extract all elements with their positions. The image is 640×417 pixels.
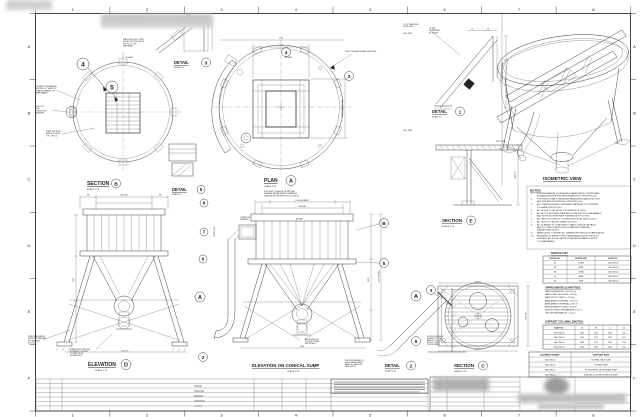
note-number: 1.: [531, 193, 533, 195]
notes-list: 1.FOR MECHANICAL (PLATEWORK) FABRICATION…: [531, 192, 605, 243]
note-plan-location: ORIENTATION SHOWN FOR 1300-TNK-05.: [264, 194, 300, 197]
dim-detail1-2: 36: [487, 29, 489, 31]
note-number: 2.: [531, 199, 533, 201]
grid-row-label: F: [633, 375, 636, 380]
note-line: TO GRADE S355JR U.N.O.: [537, 206, 563, 209]
drawing-sheet: NOZZLE NO.NOZZLE SIZEEQUIP. NO.N1100NB13…: [0, 0, 640, 417]
dim-sectionc-base: 960 TYP.: [474, 349, 482, 351]
section-c-scale: SCALE 1:20: [454, 370, 467, 373]
ref-bubble-label: E: [469, 218, 473, 224]
grid-col-label: 3: [220, 413, 223, 417]
note-line: INSTALLATION SEE PPM SPECIFICATION No. P…: [537, 195, 598, 198]
ref-bubble: 4: [77, 58, 89, 70]
section-b-title: SECTION: [87, 181, 110, 187]
ref-bubble: 3: [427, 286, 436, 295]
table-cell: 1365: [580, 332, 584, 334]
redacted-sheet-stamp: [101, 14, 213, 28]
support-lengths-title: SUPPORT COLUMN LENGTHS:: [545, 320, 584, 324]
ref-bubble-label: D: [124, 363, 128, 369]
dim-conical-height2: 2150 OVERALL: [378, 270, 381, 283]
note-line: ENGINEER TO INSPECT FULLY ASSEMBLED EQUI…: [537, 235, 599, 238]
quantity-line: AREA (PAINT) EXTERNAL = 9.39 m²: [545, 302, 578, 305]
grid-row-label: E: [28, 309, 31, 314]
redacted-titleblock-text: [433, 378, 489, 391]
notes-title: NOTES:: [530, 189, 541, 193]
table-cell: STACKER CYCLONE OVERFLOW SUMP: [584, 374, 619, 377]
ref-bubble-label: 2: [410, 363, 413, 369]
quantity-line: LENGTH HANDRAILING = 12.6 m: [545, 312, 576, 315]
detail-2-view: [377, 288, 466, 356]
grid-col-label: 5: [369, 413, 372, 417]
grid-col-label: 2: [146, 7, 149, 12]
ref-bubble: 2: [407, 361, 416, 370]
table-cell: 1300-TNK-10: [545, 365, 556, 367]
dim-elev-height: 1600: [73, 278, 75, 282]
redacted-corner-text: [6, 0, 52, 10]
dim-sectionc-side: 1300 SQ.: [526, 312, 528, 320]
grid-col-label: 1: [72, 7, 75, 12]
table-cell: 1615: [594, 337, 598, 339]
drawing-canvas: NOZZLE NO.NOZZLE SIZEEQUIP. NO.N1100NB13…: [0, 0, 640, 417]
ref-bubble-label: 8: [202, 257, 205, 262]
detail-3-title: DETAIL: [174, 60, 189, 65]
ref-bubble: A: [286, 176, 296, 186]
table-cell: N4: [554, 276, 556, 278]
detail-1-view: [430, 30, 508, 109]
ref-bubble: 3: [202, 58, 211, 67]
grid-col-label: 4: [295, 413, 298, 417]
ref-bubble: 5: [380, 259, 389, 268]
isometric-view: [494, 27, 631, 173]
quantities-list: MASS PLATEWORK = 2052.59 kgMASS STEEL SE…: [545, 290, 582, 315]
nozzle-list-table: NOZZLE NO.NOZZLE SIZEEQUIP. NO.N1100NB13…: [543, 256, 631, 283]
table-cell: 1300-TNK-10: [554, 337, 565, 339]
ref-bubble: A: [195, 292, 205, 302]
ref-bubble-label: B: [114, 181, 118, 187]
note-line: GASKETS AND BOLTS.: [537, 229, 560, 232]
ref-bubble: 1: [456, 107, 465, 116]
ref-bubble-label: 6: [203, 201, 206, 206]
note-number: 6.: [531, 218, 533, 220]
ref-bubble-label: C: [481, 363, 485, 369]
note-stillage: FOR STILLAGE DETAILS SEE DWG: [345, 50, 377, 53]
ref-bubble: 3: [345, 72, 354, 81]
note-sump-support: TYP. 4 PLCS: [46, 135, 58, 137]
grid-row-label: D: [28, 243, 31, 248]
ref-bubble-label: 7: [203, 230, 206, 235]
elevation-conical-title: ELEVATION ON CONICAL SUMP: [252, 363, 319, 368]
ref-bubble: B: [380, 219, 389, 228]
quantities-title: APPROXIMATE QUANTITIES:: [545, 286, 581, 290]
table-cell: 1485: [580, 342, 584, 344]
grid-row-label: B: [633, 110, 636, 115]
ref-bubble: 5: [197, 186, 205, 194]
ref-bubble: 6: [412, 337, 421, 346]
note-number: 10.: [531, 236, 534, 238]
grid-row-label: C: [28, 177, 31, 182]
note-backing-strip: STRIP 40 W: [403, 26, 414, 28]
equipment-table: EQUIPMENT NUMBEREQUIPMENT NAME1300-TNK-0…: [529, 352, 631, 377]
ref-bubble: C: [479, 361, 488, 370]
detail-2-scale: SCALE 1:10: [385, 370, 397, 373]
elevation-d-title: ELEVATION: [88, 362, 116, 368]
note-stiffener: PL 8 (TYP): [429, 32, 439, 34]
dim-sectionc-top: 1300 SQ.: [474, 282, 482, 284]
ref-bubble-label: A: [198, 295, 202, 301]
detail-5-title: DETAIL: [172, 187, 187, 192]
detail-3-scale: SCALE 1:5: [174, 66, 185, 69]
ref-bubble: D: [121, 360, 131, 370]
table-cell: 50NB: [579, 281, 584, 283]
cl-sump-1: ℄ SUMP: [125, 56, 134, 59]
ref-bubble-label: 4: [285, 50, 288, 56]
ref-bubble-label: 2: [202, 355, 205, 361]
note-drain-nozzle: ALL AROUND 6: [70, 354, 82, 357]
grid-row-label: A: [28, 44, 31, 49]
redacted-company-logo: [544, 377, 569, 395]
table-cell: 80NB: [579, 267, 584, 269]
table-cell: 1300-TNK-20: [554, 347, 565, 349]
dim-sectione: 1200 TYP.: [515, 170, 517, 179]
dim-plan-right: 1100 (GRATING DIA.): [341, 99, 344, 117]
table-cell: N2: [554, 267, 556, 269]
table-header-cell: C: [609, 328, 611, 330]
note-slotted-holes-2: (FAR SIDE): [123, 45, 133, 48]
note-line: ALL HOLES TO BE 18 DIA. FOR M16 BOLTS U.…: [537, 209, 587, 212]
table-cell: 1365: [580, 337, 584, 339]
ref-bubble: 5: [106, 81, 118, 93]
table-cell: 1300-TNK-20: [608, 281, 619, 283]
elevation-d-scale: SCALE 1:20: [95, 369, 108, 372]
note-line: DELIVERY. ALL EQUIP. PARTS TO BE MATCH M…: [537, 237, 598, 240]
note-line: ALL STEELWORK AND PLATEWORK MATERIAL TO …: [537, 203, 598, 206]
note-drn-pipe-assy: PADS 4 PLCS: [345, 365, 357, 368]
ref-bubble-label: 3: [348, 74, 351, 80]
grid-col-label: 5: [369, 7, 372, 12]
quantity-line: MASS PLATEWORK = 2052.59 kg: [545, 290, 576, 293]
table-cell: N1: [554, 263, 556, 265]
grid-col-label: 6: [443, 413, 446, 417]
ref-bubble: 2: [199, 353, 208, 362]
quantity-line: MASS STEEL SECTIONS = 785 kg: [545, 293, 577, 296]
cl-sump-3: ℄ SUMP: [295, 218, 304, 221]
plan-title: PLAN: [264, 178, 278, 184]
dim-elev-left-3: 430: [159, 195, 162, 197]
section-c-title: SECTION: [454, 363, 474, 368]
table-header-cell: NOZZLE SIZE: [575, 258, 587, 260]
note-number: 8.: [531, 224, 533, 226]
ref-bubble-label: 3: [205, 60, 208, 66]
note-launder: LAUNDER: [35, 112, 45, 115]
note-number: 3.: [531, 204, 533, 206]
dim-elev-left-2: 1340 DIA.: [120, 194, 128, 197]
grid-row-label: C: [633, 177, 636, 182]
ref-bubble-label: 6: [415, 339, 418, 345]
section-e-title: SECTION: [442, 218, 462, 223]
ref-bubble-label: B: [382, 221, 386, 227]
note-line: ALL FLANGES TO CONFORM TO TABLE 1000/3 (…: [537, 223, 596, 226]
dim-conical-base: 1460: [300, 346, 304, 348]
section-e-view: [436, 145, 522, 205]
note-full-pen-3: FULL PEN.: [496, 141, 506, 143]
table-cell: 1300-TNK-05: [608, 267, 619, 269]
ref-bubble: B: [112, 179, 121, 188]
grid-row-label: E: [633, 309, 636, 314]
dim-elev-base: 940 TYP.: [121, 351, 129, 353]
detail-1-title: DETAIL: [432, 109, 447, 114]
ref-bubble-label: 5: [200, 187, 203, 192]
table-cell: 100NB: [578, 272, 584, 274]
note-line: ALL BOLTS, NUTS AND WASHERS TO BE ELECTR…: [537, 212, 602, 215]
note-line: AND TO COME COMPLETE WITH BACKING FLANGE…: [537, 226, 591, 229]
note-number: 7.: [531, 221, 533, 223]
elevation-conical-scale: SCALE 1:20: [287, 370, 300, 373]
note-overflow-launder: LAUNDER: [240, 218, 249, 221]
dim-plan-outer: 1700: [279, 38, 283, 40]
table-cell: 2041: [608, 337, 612, 339]
section-e-scale: SCALE 1:10: [442, 225, 455, 228]
table-header-cell: B: [595, 328, 597, 330]
grid-row-label: B: [28, 110, 31, 115]
dim-plan-inner: 1100: [279, 45, 283, 47]
table-cell: 2161: [608, 342, 612, 344]
table-cell: 2041: [608, 347, 612, 349]
table-cell: 1615: [594, 332, 598, 334]
note-line: FOR STRUCTURAL STEELWORK FABRICATION AND…: [537, 198, 600, 201]
quantity-line: AREA (RUBBER LINING) = 8.05 m²: [545, 306, 577, 309]
grid-col-label: 8: [592, 7, 595, 12]
grid-col-label: 8: [592, 413, 595, 417]
table-cell: N3: [554, 272, 556, 274]
ref-bubble: 6: [200, 199, 208, 207]
table-cell: RC ROUGHER CONCENTRATE SUMP: [585, 369, 618, 372]
grid-col-label: 7: [518, 7, 521, 12]
elevation-conical-view: [214, 200, 383, 348]
ref-bubble-label: A: [414, 294, 418, 300]
ref-bubble: 7: [200, 228, 208, 236]
elevation-d-view: [42, 195, 187, 352]
redacted-drawing-number: [538, 404, 604, 409]
note-line: FABRICATOR TO VERIFY ALL DIMENSIONS PRIO…: [537, 232, 605, 235]
quantity-line: MASS BOLTS & NUTS = 22.4 kg: [545, 296, 574, 299]
grid-row-label: D: [633, 243, 636, 248]
table-cell: 1300-TNK-05: [545, 360, 556, 362]
detail-5-view: [169, 144, 196, 176]
redacted-drawing-title: [518, 394, 626, 403]
nozzle-list-title: NOZZLE LIST:: [551, 251, 568, 255]
note-grating-panel: REMOVABLE: [36, 92, 48, 95]
note-number: 9.: [531, 233, 533, 235]
table-cell: 1300-TNK-10: [608, 272, 619, 274]
table-cell: 2041: [608, 332, 612, 334]
grid-col-label: 4: [295, 7, 298, 12]
table-cell: 1300-TNK-19: [554, 342, 565, 344]
note-number: 5.: [531, 213, 533, 215]
note-line: ALL BOLTS TO BE M16 GRADE 8.8 U.N.O.: [537, 220, 578, 223]
ref-bubble: E: [467, 216, 476, 225]
table-header-cell: NOZZLE NO.: [550, 258, 561, 260]
ref-bubble-label: A: [289, 179, 293, 185]
table-cell: 1300-TNK-19: [608, 276, 619, 278]
quantity-line: AREA (PAINT) INTERNAL = 8.05 m²: [545, 299, 578, 302]
note-full-pen-1: FULL PEN.: [403, 33, 413, 35]
table-cell: 80NB: [579, 276, 584, 278]
isometric-title: ISOMETRIC VIEW: [543, 176, 582, 181]
table-header-cell: A: [581, 327, 583, 330]
table-cell: 530: [623, 342, 626, 344]
note-gusset: 25 NOM. GROUT: [427, 344, 440, 346]
ref-bubble-label: 3: [430, 288, 433, 294]
grid-row-label: A: [633, 44, 636, 49]
table-cell: 1365: [580, 347, 584, 349]
ref-bubble-label: 4: [81, 62, 85, 69]
note-line: FOR MECHANICAL (PLATEWORK) FABRICATION, …: [537, 192, 600, 195]
table-cell: 410: [623, 332, 626, 334]
note-drain-valve: 4 PLCS: [28, 343, 35, 345]
grid-col-label: 7: [518, 413, 521, 417]
grid-col-label: 1: [72, 413, 75, 417]
plan-scale: SCALE 1:20: [264, 185, 277, 188]
detail-2-title: DETAIL: [385, 363, 400, 368]
table-cell: 410: [623, 347, 626, 349]
note-line: ALL WELDS TO BE 6mm CONTINUOUS FILLET WE…: [537, 217, 598, 220]
table-cell: N5: [554, 281, 556, 283]
support-lengths-table: EQUIP. NO.ABCD1300-TNK-05136516152041410…: [543, 325, 631, 349]
dim-elev-left-1: 430: [87, 195, 90, 197]
grid-col-label: 6: [443, 7, 446, 12]
grid-row-label: F: [28, 375, 31, 380]
table-header-cell: EQUIP. NO.: [554, 328, 564, 330]
grid-col-label: 3: [220, 7, 223, 12]
table-cell: 1300-TNK-19: [545, 370, 556, 372]
ref-bubble-label: 1: [459, 109, 462, 115]
quantity-line: LENGTH STEEL PIPE BARRIER = 3.2 m: [545, 309, 582, 312]
ref-bubble: 8: [199, 255, 207, 263]
detail-1-scale: SCALE 1:5: [432, 116, 443, 119]
section-b-view: [52, 52, 182, 170]
table-header-cell: D: [623, 328, 625, 330]
table-header-cell: EQUIPMENT NAME: [593, 354, 610, 357]
note-bkg-nozzle: SEE DETAIL 3: [305, 342, 316, 345]
ref-bubble-label: 5: [110, 85, 114, 92]
table-cell: 1300-TNK-05: [554, 332, 565, 334]
note-line: TO DISASSEMBLY.: [537, 240, 556, 243]
note-line: AND SUPPLIED WITH FREE TURNING NUTS TO S…: [537, 214, 590, 217]
ref-bubble: A: [411, 291, 421, 301]
detail-5-scale: SCALE 1:5: [172, 193, 183, 196]
table-cell: RC FINAL TAILS SUMP: [591, 359, 611, 362]
note-overflow: OVERFLOW: [214, 226, 216, 237]
plan-view: [212, 40, 352, 175]
table-header-cell: EQUIPMENT NUMBER: [540, 355, 560, 357]
table-header-cell: EQUIP. NO.: [608, 258, 618, 260]
section-b-scale: SCALE 1:20: [87, 188, 100, 191]
dim-conical-2: 1140 DIA.: [298, 205, 306, 208]
table-cell: 1615: [594, 347, 598, 349]
table-cell: 1735: [594, 342, 598, 344]
dim-conical-height1: 1630: [368, 278, 370, 282]
table-cell: 100NB: [578, 263, 584, 265]
dim-conical-1: 1300 (SQUARE): [295, 199, 309, 202]
revision-table: [36, 379, 428, 411]
table-cell: 410: [623, 337, 626, 339]
note-line: SEE PPM SPECIFICATION No. PPM-SPEC-002.: [537, 200, 583, 203]
ref-bubble-label: 5: [383, 261, 386, 267]
table-cell: RC FEED SUMP: [594, 365, 608, 367]
note-full-pen-2: FULL PEN.: [403, 130, 413, 132]
note-number: 4.: [531, 210, 533, 212]
grid-col-label: 2: [146, 413, 149, 417]
table-cell: 1300-TNK-05: [608, 263, 619, 265]
dim-detail1-1: 94: [471, 29, 473, 31]
